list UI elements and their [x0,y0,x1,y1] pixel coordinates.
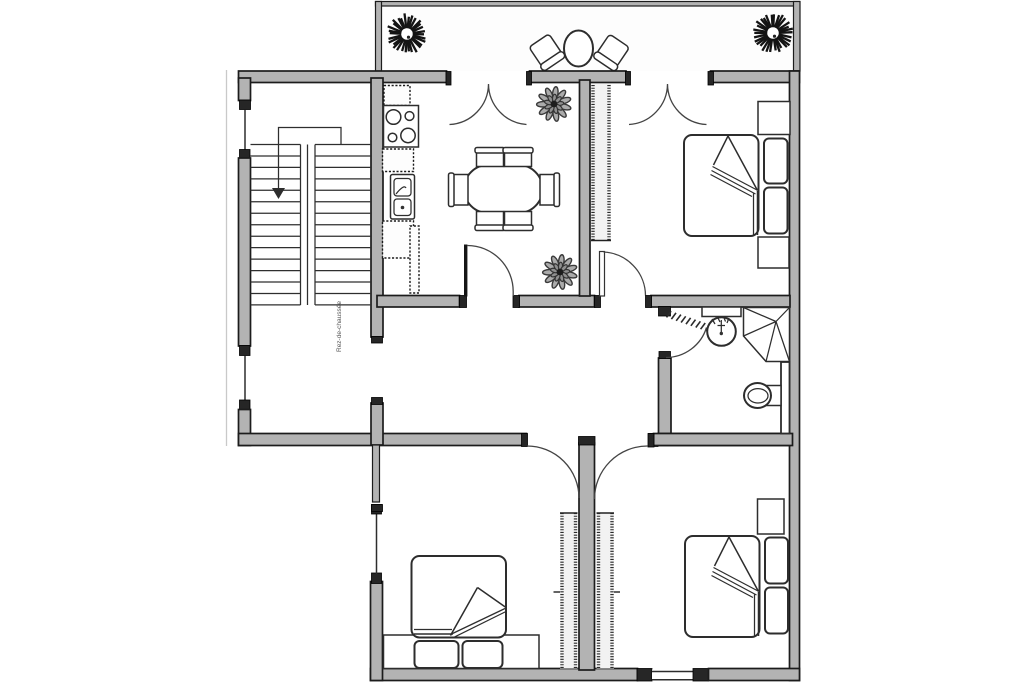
svg-text:Rez-de-chaussée: Rez-de-chaussée [336,301,343,352]
